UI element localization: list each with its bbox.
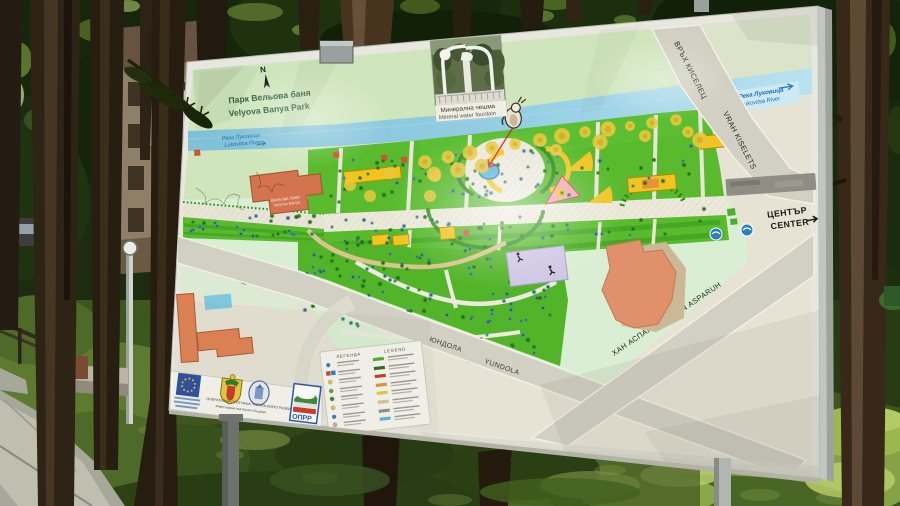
svg-text:N: N — [260, 65, 267, 75]
